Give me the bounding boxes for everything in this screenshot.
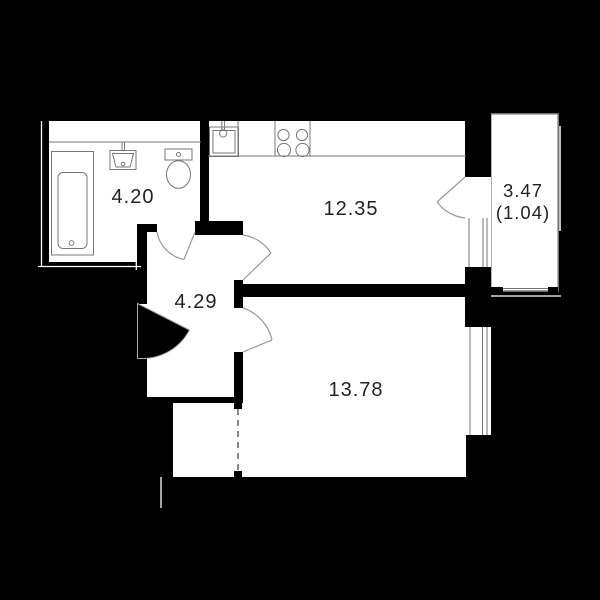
kitchen-area-label: 12.35 — [323, 198, 378, 220]
living-room-area-label: 13.78 — [328, 379, 383, 401]
hallway-area-label: 4.29 — [175, 291, 218, 313]
balcony-door-opening — [465, 177, 491, 218]
balcony-block-window — [465, 218, 491, 267]
living-door-opening — [234, 308, 243, 352]
bathroom-door-opening — [157, 220, 195, 232]
bathroom-area-label: 4.20 — [112, 186, 155, 208]
balcony-reduced-area-label: (1.04) — [496, 202, 550, 223]
living-room-window — [466, 327, 491, 435]
hallway-floor — [147, 231, 234, 397]
floor-plan: 4.20 12.35 4.29 13.78 3.47 (1.04) — [0, 0, 600, 600]
floor-plan-canvas: 4.20 12.35 4.29 13.78 3.47 (1.04) — [0, 0, 600, 600]
kitchen-door-opening — [234, 235, 243, 280]
balcony-area-label: 3.47 — [503, 180, 543, 201]
